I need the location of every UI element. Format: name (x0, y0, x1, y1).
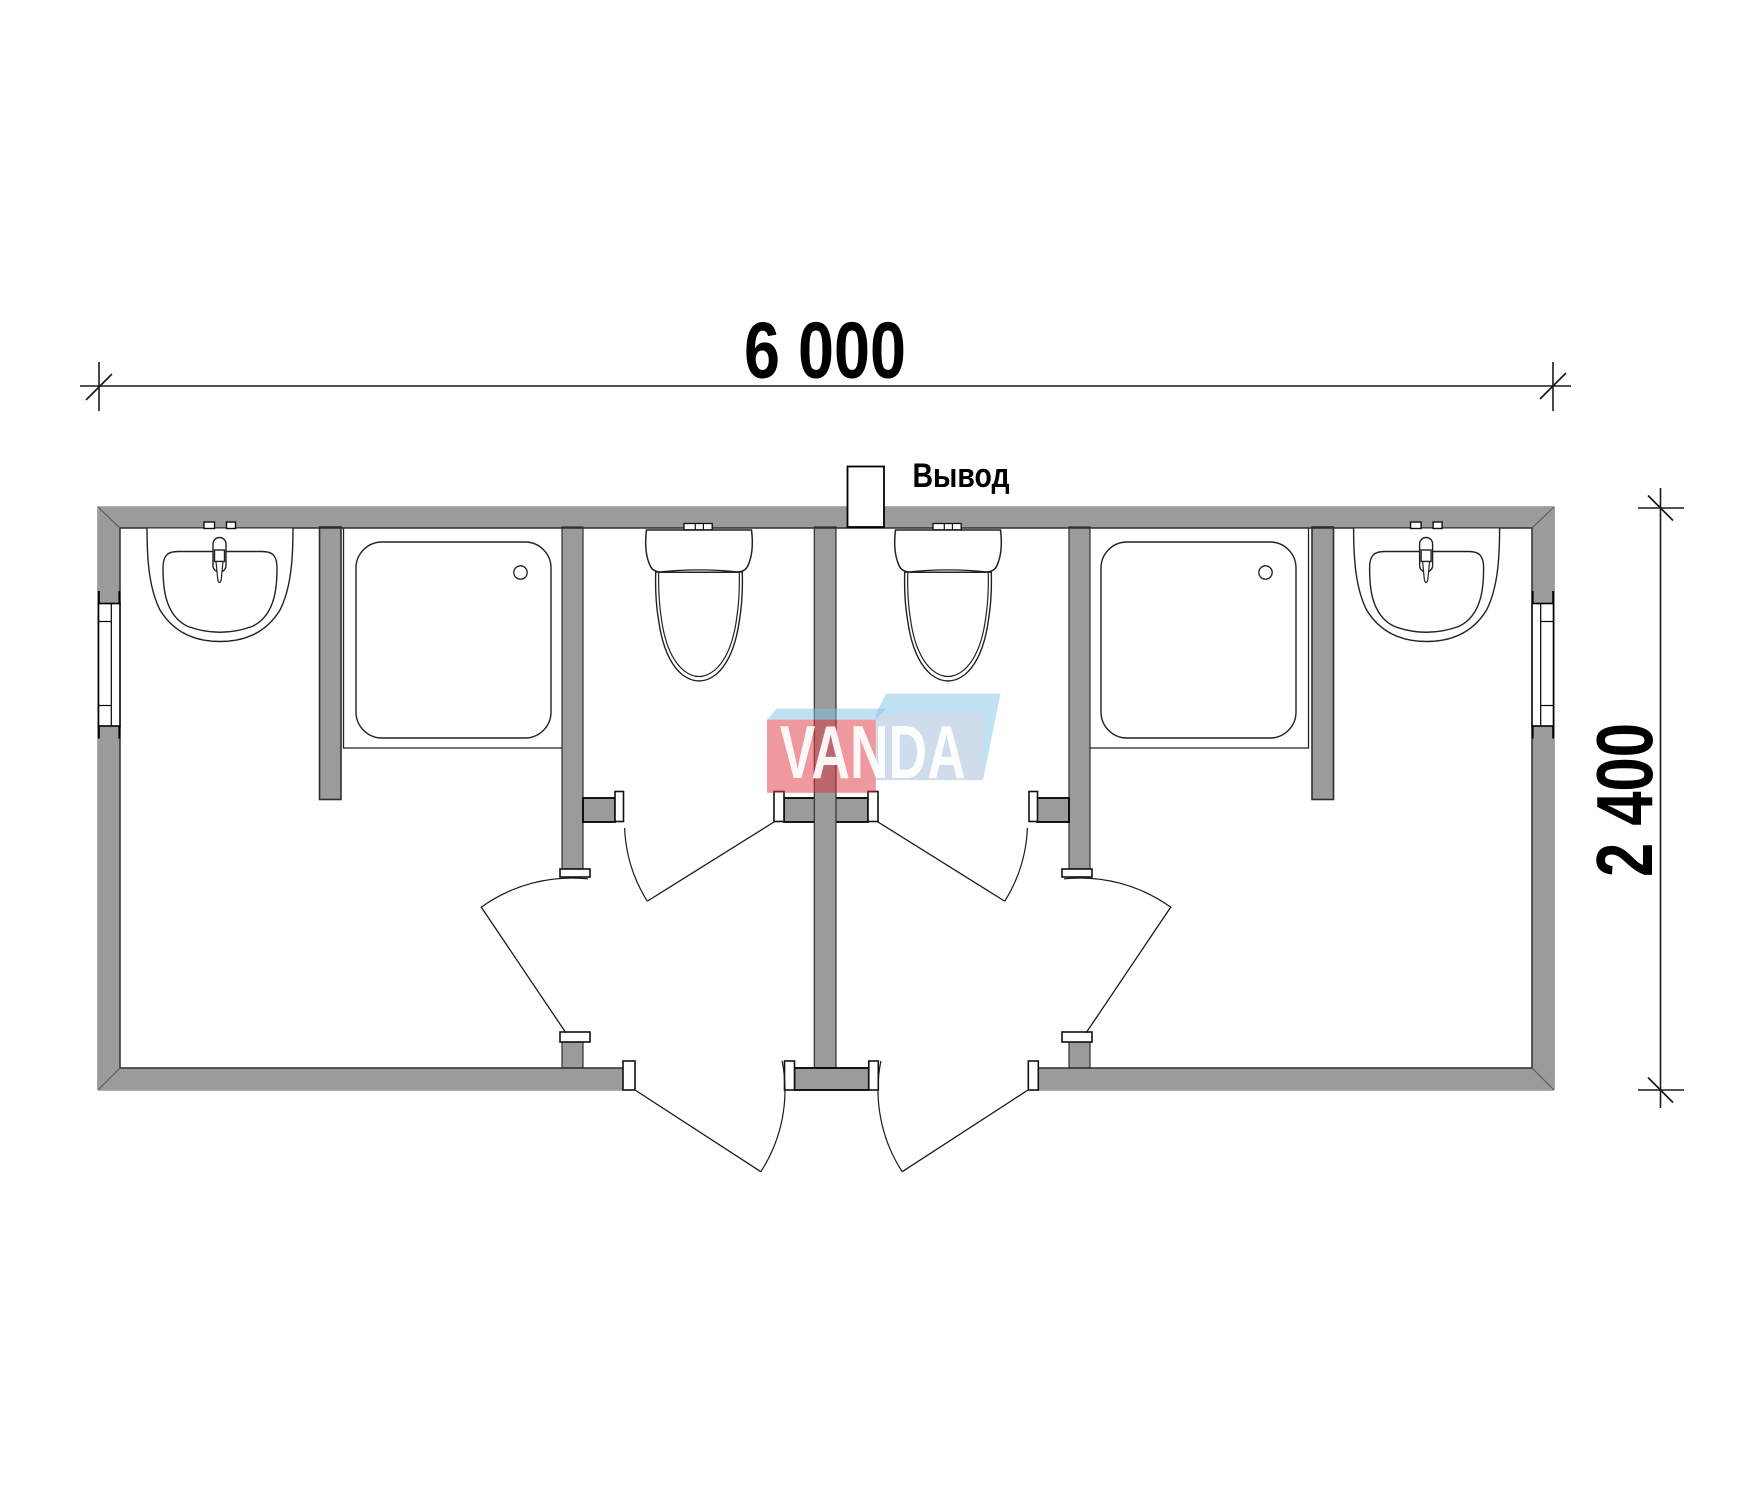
svg-text:2 400: 2 400 (1580, 723, 1669, 877)
svg-text:6 000: 6 000 (744, 306, 906, 395)
svg-text:Вывод: Вывод (913, 457, 1010, 495)
svg-text:VANDA: VANDA (780, 710, 966, 794)
